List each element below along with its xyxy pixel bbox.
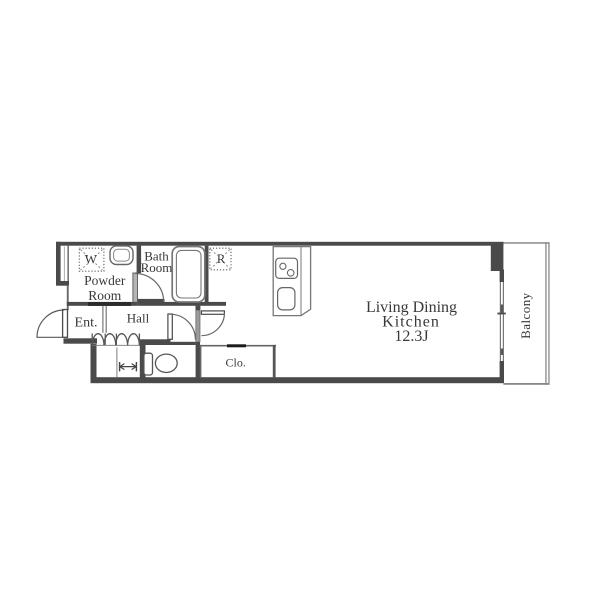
svg-text:Ent.: Ent. — [75, 316, 98, 331]
svg-text:12.3J: 12.3J — [394, 328, 428, 345]
svg-text:Room: Room — [88, 288, 122, 303]
svg-text:Hall: Hall — [127, 311, 150, 326]
svg-text:R: R — [217, 252, 226, 266]
svg-text:Room: Room — [141, 260, 173, 275]
svg-text:W: W — [85, 252, 98, 267]
svg-text:Balcony: Balcony — [518, 292, 533, 339]
svg-text:Powder: Powder — [84, 273, 126, 288]
svg-text:Clo.: Clo. — [226, 356, 246, 370]
